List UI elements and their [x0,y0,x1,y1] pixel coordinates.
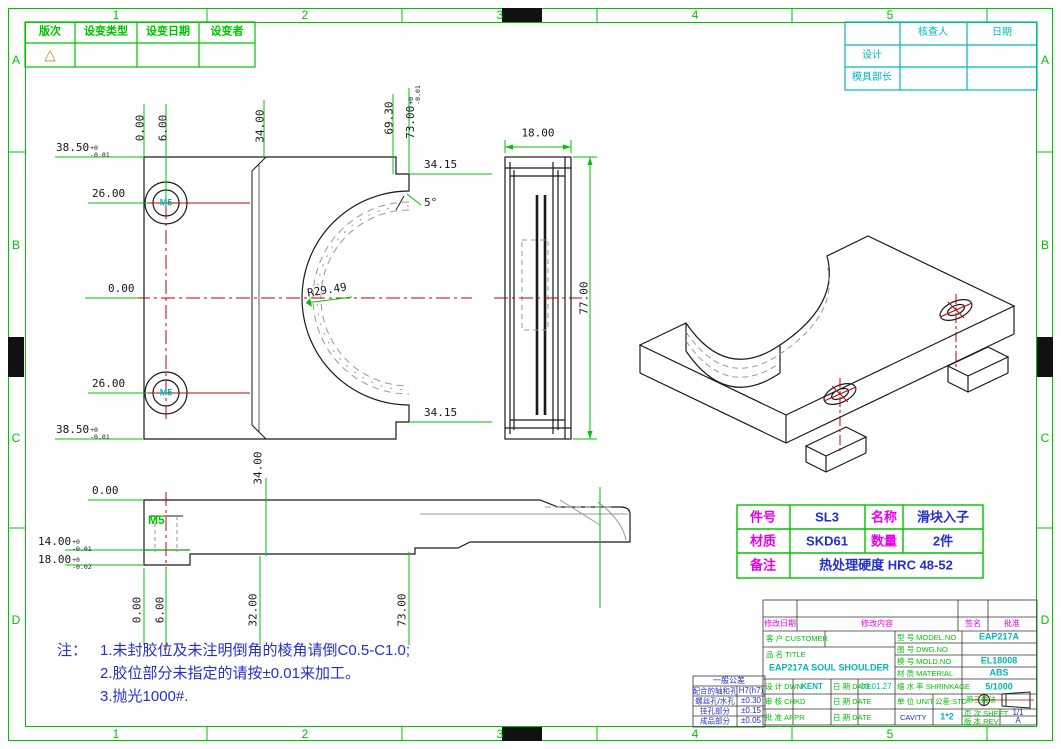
ruler-number: 3 [497,9,504,21]
dim-label: 18.00 [521,128,554,139]
dim-label: 18.00+0-0.02 [38,554,92,570]
tolerance-row-value: ±0.30 [741,697,761,705]
thread-callout: M5 [160,389,173,398]
dim-label: 38.50+0-0.01 [56,142,110,158]
ruler-number: 4 [692,728,699,740]
dim-label: 26.00 [92,378,125,389]
dim-label: 5° [424,197,437,208]
dim-label: 6.00 [158,115,169,142]
dim-label: 69.30 [384,101,395,134]
remark-label: 备注 [750,559,776,572]
note-line: 1.未封胶位及未注明倒角的棱角请倒C0.5-C1.0; [100,643,410,658]
dimension-arrows [306,145,593,440]
dim-label: 0.00 [108,283,135,294]
tb-rev-date-header: 修改日期 [764,620,796,628]
tb-chk-label: 审 核 CHKD [765,698,805,706]
tolerance-row-value: ±0.05 [741,717,761,725]
centerlines [136,180,972,650]
ruler-number: 2 [302,728,309,740]
tb-rev-value: A [1015,717,1020,725]
tb-mold-value: EL18008 [981,657,1018,666]
part-name-value: 滑块入子 [917,511,969,524]
tolerance-row-label: 挂孔部分 [700,707,730,715]
dim-label: 34.00 [255,109,266,142]
dim-label: 0.00 [135,115,146,142]
tolerance-title: 一般公差 [713,677,745,685]
tb-appr-date-label: 日 期 DATE [833,714,872,722]
tb-model-value: EAP217A [979,633,1019,642]
tb-title-label: 品 名 TITLE [766,651,806,659]
part-no-label: 件号 [750,511,776,524]
ruler-letter: A [12,54,20,66]
tb-dwg-label: 图 号 DWG.NO [897,646,948,654]
revision-header: 版次 [39,27,61,38]
dim-label: 6.00 [155,597,166,624]
dim-label: 77.00 [579,281,590,314]
remark-value: 热处理硬度 HRC 48-52 [819,559,953,572]
approval-date-label: 日期 [992,28,1012,38]
bottom-view [144,500,630,565]
ruler-number: 1 [113,728,120,740]
tb-mold-label: 模 号 MOLD.NO [897,658,951,666]
dim-label: 34.15 [424,407,457,418]
ruler-number: 1 [113,9,120,21]
approval-mold-chief-label: 模具部长 [852,73,892,83]
dim-label: 34.00 [253,451,264,484]
tb-shrink-label: 缩 水 率 SHRINKAGE [897,683,970,691]
tb-dwn-label: 设 计 DWN [765,683,802,691]
material-value: SKD61 [806,535,848,548]
tb-rev-appr-header: 批准 [1004,620,1020,628]
tb-rev-sign-header: 签名 [965,620,981,628]
approval-checker-label: 核查人 [918,28,948,38]
cad-drawing-sheet: 1 2 3 4 5 1 2 3 4 5 A B C D A B C D 版次 设… [0,0,1061,749]
tb-shrink-value: 5/1000 [985,683,1013,692]
dim-label: 38.50+0-0.01 [56,424,110,440]
part-no-value: SL3 [815,511,839,524]
ruler-number: 4 [692,9,699,21]
ruler-letter: D [12,614,21,626]
ruler-number: 5 [887,9,894,21]
revision-header: 设变类型 [84,27,128,38]
notes-prefix: 注： [57,643,87,658]
revision-triangle-icon: △ [44,48,56,63]
tolerance-row-value: ±0.15 [741,707,761,715]
ruler-letter: C [12,432,21,444]
part-name-label: 名称 [871,511,897,524]
tb-angle-label: 第三角法 [966,696,996,704]
tb-mat-label: 材 质 MATERIAL [897,670,953,678]
dim-label: 26.00 [92,188,125,199]
dim-label: 73.00+0-0.01 [405,85,421,139]
ruler-letter: C [1041,432,1050,444]
tb-unit-std: 公差:STD [935,698,967,706]
iso-view [640,236,1014,472]
tb-dwn-value: KENT [801,683,823,691]
ruler-letter: B [1041,239,1049,251]
tb-rev-content-header: 修改内容 [861,620,893,628]
bottom-view-hidden [155,500,628,552]
ruler-letter: B [12,239,20,251]
tb-rev-label: 版 本 REV [964,718,999,726]
tb-dwn-date-value: 18.01.27 [860,683,891,691]
ruler-number: 2 [302,9,309,21]
dim-label: 34.15 [424,159,457,170]
material-label: 材质 [750,535,776,548]
ruler-number: 5 [887,728,894,740]
thread-callout: M5 [160,199,173,208]
note-line: 3.抛光1000#. [100,689,188,704]
tolerance-row-label: 螺丝孔/水孔 [695,697,735,705]
ruler-letter: A [1041,54,1049,66]
approval-designer-label: 设计 [862,51,882,61]
dim-label: 32.00 [248,593,259,626]
tb-model-label: 型 号 MODEL.NO [897,634,956,642]
tb-chk-date-label: 日 期 DATE [833,698,872,706]
tb-cavity-label: CAVITY [900,714,927,722]
note-line: 2.胶位部分未指定的请按±0.01来加工。 [100,666,360,681]
tb-unit-label: 单 位 UNIT [897,698,934,706]
dim-label: 0.00 [132,597,143,624]
tb-customer-label: 客 户 CUSTOMER [766,635,828,643]
tolerance-row-label: 成品部分 [700,717,730,725]
ruler-letter: D [1041,614,1050,626]
thread-callout: M5 [148,514,165,526]
qty-value: 2件 [933,535,953,548]
tolerance-row-value: H7(h7) [739,687,763,695]
qty-label: 数量 [871,535,897,548]
dim-label: 14.00+0-0.01 [38,536,92,552]
tb-title-value: EAP217A SOUL SHOULDER [769,664,889,673]
tb-cavity-value: 1*2 [940,713,954,722]
dim-label: 73.00 [397,593,408,626]
dim-label: 0.00 [92,485,119,496]
tb-appr-label: 批 准 APPR [765,714,805,722]
ruler-number: 3 [497,728,504,740]
revision-header: 设变日期 [146,27,190,38]
tolerance-row-label: 配合的轴和孔 [693,687,738,695]
tb-mat-value: ABS [989,669,1008,678]
revision-header: 设变者 [211,27,244,38]
